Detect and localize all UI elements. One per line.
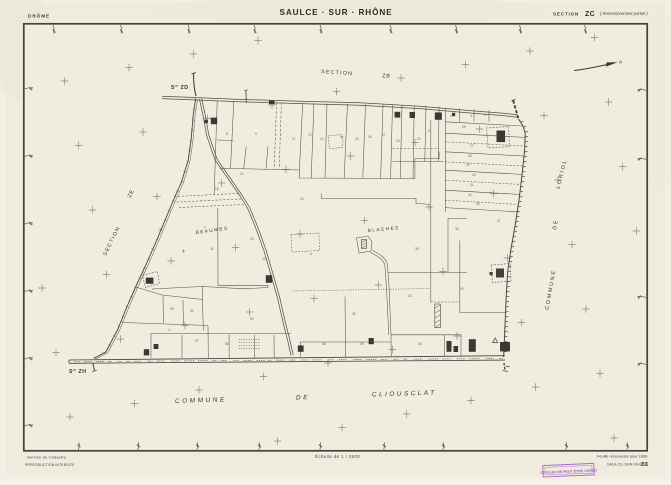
svg-text:18: 18 xyxy=(396,139,400,143)
svg-text:18: 18 xyxy=(215,187,219,191)
svg-text:SECTION: SECTION xyxy=(553,11,579,16)
svg-text:54: 54 xyxy=(190,309,194,313)
svg-text:REPRODUCTION INTERDITE: REPRODUCTION INTERDITE xyxy=(25,463,75,467)
svg-text:11: 11 xyxy=(292,137,296,141)
svg-text:52: 52 xyxy=(250,317,254,321)
svg-text:Service du Cadastre: Service du Cadastre xyxy=(27,454,66,459)
svg-text:43: 43 xyxy=(408,294,412,298)
svg-text:27: 27 xyxy=(470,144,474,148)
svg-text::: : xyxy=(436,52,437,56)
svg-text:SAULCE · SUR · RHÔNE: SAULCE · SUR · RHÔNE xyxy=(279,6,392,17)
svg-text:3: 3 xyxy=(470,114,472,118)
svg-text:17: 17 xyxy=(382,133,386,137)
svg-text:31: 31 xyxy=(210,247,214,251)
svg-text:16: 16 xyxy=(368,135,372,139)
svg-text:ZB: ZB xyxy=(382,73,391,80)
svg-text:35: 35 xyxy=(455,227,459,231)
svg-text:on: on xyxy=(175,84,179,88)
svg-text:Feuille renouvelée pour 1966: Feuille renouvelée pour 1966 xyxy=(597,453,647,458)
svg-text:50: 50 xyxy=(418,342,422,346)
svg-text:9: 9 xyxy=(255,132,257,136)
svg-text:ZC: ZC xyxy=(585,11,595,18)
svg-text:24: 24 xyxy=(300,197,304,201)
svg-text:ZD: ZD xyxy=(181,85,189,91)
svg-text:40: 40 xyxy=(460,287,464,291)
svg-text:Échelle de 1 / 2500: Échelle de 1 / 2500 xyxy=(315,454,360,459)
svg-text:19: 19 xyxy=(417,137,421,141)
svg-text:29: 29 xyxy=(466,163,470,167)
svg-text:13: 13 xyxy=(320,137,324,141)
svg-text:on: on xyxy=(73,368,77,372)
svg-text:32: 32 xyxy=(468,193,472,197)
svg-text:45: 45 xyxy=(352,312,356,316)
svg-text:20: 20 xyxy=(240,172,244,176)
svg-text:36: 36 xyxy=(415,247,419,251)
svg-text:33: 33 xyxy=(476,202,480,206)
svg-text:56: 56 xyxy=(225,342,229,346)
svg-text:57: 57 xyxy=(195,339,199,343)
svg-text:2: 2 xyxy=(450,114,452,118)
svg-text:37: 37 xyxy=(497,219,501,223)
svg-text:21: 21 xyxy=(428,129,432,133)
svg-text:48: 48 xyxy=(322,342,326,346)
svg-text:ZC: ZC xyxy=(641,462,648,468)
svg-text:28: 28 xyxy=(468,154,472,158)
svg-text:DE: DE xyxy=(296,394,310,401)
svg-text:33: 33 xyxy=(250,237,254,241)
svg-text:25: 25 xyxy=(462,125,466,129)
svg-text:42: 42 xyxy=(262,257,266,261)
svg-text:( Remembrement partiel ): ( Remembrement partiel ) xyxy=(600,11,648,16)
svg-text:14: 14 xyxy=(340,135,344,139)
svg-text:55: 55 xyxy=(170,307,174,311)
svg-text:49: 49 xyxy=(360,342,364,346)
svg-text:31: 31 xyxy=(470,183,474,187)
svg-text:DRÔME: DRÔME xyxy=(28,11,50,18)
svg-text:12: 12 xyxy=(308,133,312,137)
svg-text:15: 15 xyxy=(355,137,359,141)
svg-text:30: 30 xyxy=(472,173,476,177)
svg-text:ZH: ZH xyxy=(79,369,87,375)
svg-text:a: a xyxy=(310,252,312,256)
svg-text:4: 4 xyxy=(484,113,486,117)
svg-text:8: 8 xyxy=(226,132,228,136)
